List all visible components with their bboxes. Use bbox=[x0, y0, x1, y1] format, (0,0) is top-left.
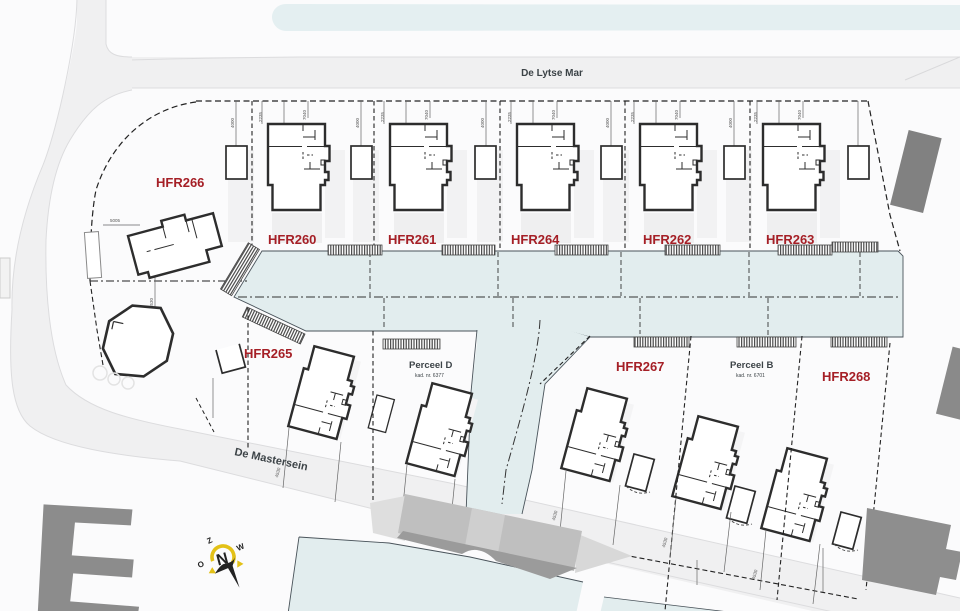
svg-text:2235: 2235 bbox=[630, 111, 635, 122]
svg-text:HFR263: HFR263 bbox=[766, 232, 814, 247]
svg-text:4000: 4000 bbox=[605, 117, 610, 128]
svg-text:7040: 7040 bbox=[424, 109, 429, 120]
svg-text:De Lytse Mar: De Lytse Mar bbox=[521, 68, 583, 79]
svg-text:4000: 4000 bbox=[355, 117, 360, 128]
svg-text:7040: 7040 bbox=[302, 109, 307, 120]
svg-text:7040: 7040 bbox=[797, 109, 802, 120]
svg-text:2235: 2235 bbox=[507, 111, 512, 122]
svg-text:HFR266: HFR266 bbox=[156, 175, 204, 190]
svg-text:Perceel D: Perceel D bbox=[409, 360, 452, 371]
svg-text:HFR267: HFR267 bbox=[616, 359, 664, 374]
svg-text:4000: 4000 bbox=[728, 117, 733, 128]
svg-text:HFR265: HFR265 bbox=[244, 346, 292, 361]
svg-text:2235: 2235 bbox=[380, 111, 385, 122]
svg-text:HFR260: HFR260 bbox=[268, 232, 316, 247]
svg-text:Perceel B: Perceel B bbox=[730, 360, 773, 371]
svg-text:HFR262: HFR262 bbox=[643, 232, 691, 247]
svg-text:7040: 7040 bbox=[551, 109, 556, 120]
svg-text:kad. nr. 6701: kad. nr. 6701 bbox=[736, 373, 765, 379]
svg-text:7040: 7040 bbox=[674, 109, 679, 120]
svg-text:HFR261: HFR261 bbox=[388, 232, 436, 247]
svg-text:kad. nr. 6377: kad. nr. 6377 bbox=[415, 373, 444, 379]
svg-text:2235: 2235 bbox=[258, 111, 263, 122]
svg-text:2235: 2235 bbox=[753, 111, 758, 122]
svg-text:HFR264: HFR264 bbox=[511, 232, 560, 247]
svg-text:4000: 4000 bbox=[480, 117, 485, 128]
svg-text:HFR268: HFR268 bbox=[822, 369, 870, 384]
svg-text:5005: 5005 bbox=[110, 218, 121, 223]
svg-text:4000: 4000 bbox=[230, 117, 235, 128]
